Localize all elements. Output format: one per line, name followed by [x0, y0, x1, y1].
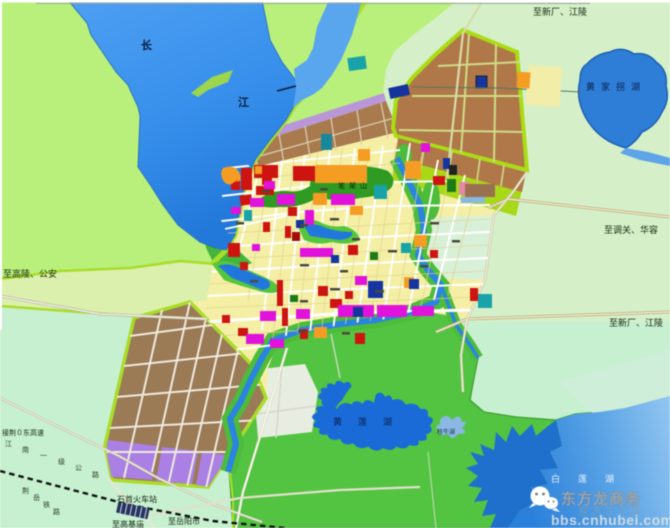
svg-text:路: 路 [53, 507, 60, 516]
svg-text:江: 江 [5, 440, 12, 448]
svg-text:至新厂、江陵: 至新厂、江陵 [533, 6, 587, 17]
svg-text:接荆０东高速: 接荆０东高速 [2, 428, 44, 437]
svg-text:石首火车站: 石首火车站 [117, 494, 157, 504]
svg-text:一: 一 [40, 453, 47, 460]
svg-text:至调关、华容: 至调关、华容 [604, 224, 658, 235]
svg-text:级: 级 [58, 457, 65, 466]
svg-text:白莲湖: 白莲湖 [551, 473, 632, 484]
svg-text:至高基庙: 至高基庙 [112, 519, 144, 528]
svg-text:至新厂、江陵: 至新厂、江陵 [609, 317, 663, 328]
svg-text:至高陵、公安: 至高陵、公安 [3, 268, 57, 279]
svg-text:黄莲湖: 黄莲湖 [333, 416, 408, 427]
svg-text:南: 南 [22, 445, 29, 454]
svg-text:路: 路 [92, 470, 99, 479]
svg-text:江: 江 [238, 95, 249, 109]
svg-text:黄家拐湖: 黄家拐湖 [586, 81, 646, 92]
svg-text:bbs.cnhubei.com: bbs.cnhubei.com [551, 512, 670, 528]
svg-text:桂牛湖: 桂牛湖 [437, 428, 455, 436]
svg-text:岳: 岳 [33, 494, 40, 502]
svg-text:东方龙商务: 东方龙商务 [561, 490, 641, 508]
svg-text:笔架山: 笔架山 [338, 181, 371, 190]
svg-text:至岳阳市: 至岳阳市 [168, 516, 200, 526]
svg-text:公: 公 [75, 464, 82, 472]
svg-text:荆: 荆 [22, 486, 29, 495]
svg-text:长: 长 [141, 38, 153, 52]
svg-text:铁: 铁 [43, 500, 50, 509]
